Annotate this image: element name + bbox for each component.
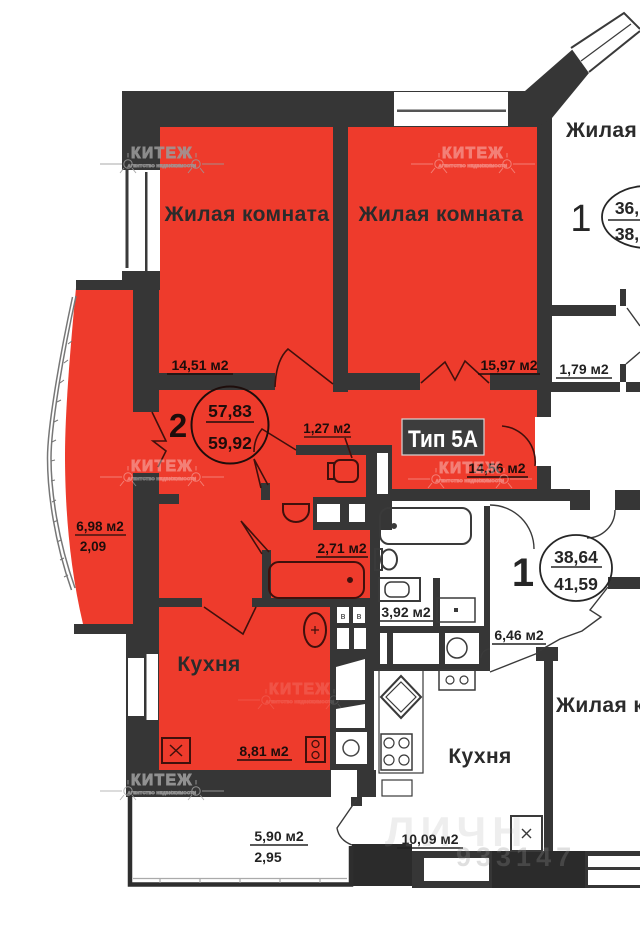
svg-text:933147: 933147 bbox=[456, 842, 576, 872]
svg-text:Тип 5А: Тип 5А bbox=[408, 426, 478, 453]
svg-text:3,92 м2: 3,92 м2 bbox=[381, 604, 430, 620]
svg-text:Жилая ко: Жилая ко bbox=[555, 694, 640, 717]
svg-text:2: 2 bbox=[169, 407, 187, 444]
svg-text:Кухня: Кухня bbox=[177, 653, 240, 676]
svg-text:38,: 38, bbox=[615, 224, 639, 244]
svg-text:36,: 36, bbox=[615, 198, 639, 218]
svg-text:в: в bbox=[357, 611, 362, 621]
svg-text:5,90 м2: 5,90 м2 bbox=[254, 828, 303, 844]
svg-text:Жилая комната: Жилая комната bbox=[358, 203, 524, 226]
svg-text:41,59: 41,59 bbox=[554, 574, 598, 594]
svg-text:8,81 м2: 8,81 м2 bbox=[239, 743, 288, 759]
svg-text:Жилая: Жилая bbox=[565, 119, 637, 142]
svg-text:14,51 м2: 14,51 м2 bbox=[171, 357, 228, 373]
svg-text:1: 1 bbox=[512, 551, 534, 595]
svg-text:2,95: 2,95 bbox=[254, 849, 281, 865]
svg-text:2,09: 2,09 bbox=[80, 539, 106, 554]
svg-text:1: 1 bbox=[570, 198, 591, 240]
svg-text:2,71 м2: 2,71 м2 bbox=[317, 540, 366, 556]
svg-text:Жилая комната: Жилая комната bbox=[164, 203, 330, 226]
svg-text:1,79 м2: 1,79 м2 bbox=[559, 361, 608, 377]
svg-text:6,46 м2: 6,46 м2 bbox=[494, 627, 543, 643]
svg-text:в: в bbox=[341, 611, 346, 621]
svg-text:59,92: 59,92 bbox=[208, 433, 252, 453]
svg-text:Кухня: Кухня bbox=[448, 745, 511, 768]
svg-text:15,97 м2: 15,97 м2 bbox=[480, 357, 537, 373]
svg-text:57,83: 57,83 bbox=[208, 401, 252, 421]
svg-text:1,27 м2: 1,27 м2 bbox=[303, 421, 351, 436]
svg-text:38,64: 38,64 bbox=[554, 547, 598, 567]
svg-text:6,98 м2: 6,98 м2 bbox=[76, 519, 124, 534]
